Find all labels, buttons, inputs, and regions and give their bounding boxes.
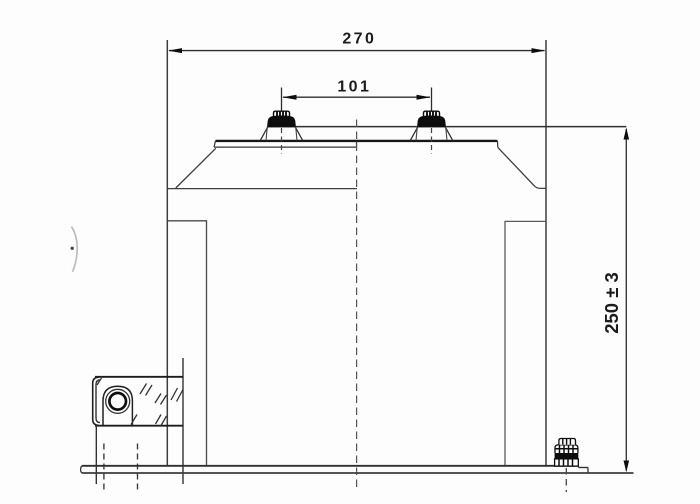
svg-text:250 ± 3: 250 ± 3: [601, 272, 622, 334]
svg-text:270: 270: [342, 31, 376, 48]
svg-text:101: 101: [337, 78, 371, 95]
